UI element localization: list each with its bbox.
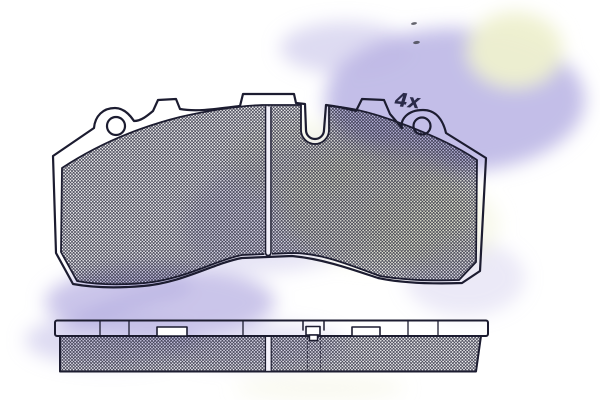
center-groove [265, 107, 273, 256]
guide-lug-right [352, 327, 380, 336]
quantity-annotation: 4x [393, 89, 422, 114]
guide-lug-left [157, 327, 187, 336]
technical-drawing: 4x [0, 0, 600, 400]
mounting-hole-left [107, 117, 125, 135]
watermark-blob [235, 374, 405, 400]
side-center-slot [265, 337, 271, 371]
watermark-blob [280, 22, 410, 74]
drawing-canvas: 4x [0, 0, 600, 400]
watermark-blob [467, 12, 563, 88]
